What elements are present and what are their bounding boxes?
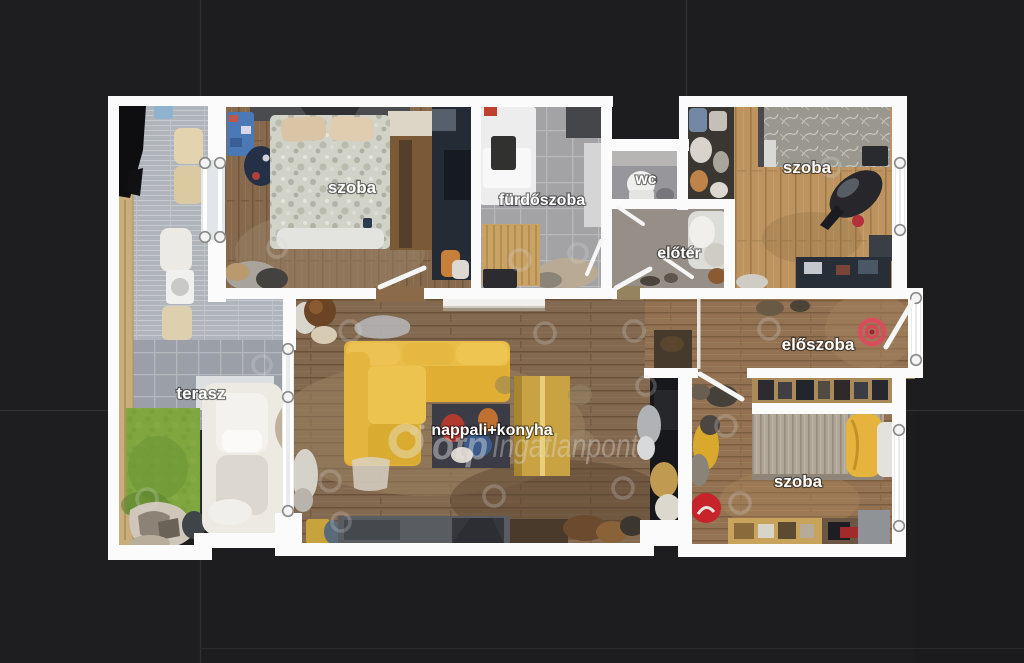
svg-text:terasz: terasz bbox=[176, 384, 225, 403]
svg-text:szoba: szoba bbox=[328, 178, 377, 197]
svg-text:előszoba: előszoba bbox=[782, 335, 855, 354]
svg-text:szoba: szoba bbox=[783, 158, 832, 177]
svg-text:előtér: előtér bbox=[657, 245, 701, 262]
svg-text:wc: wc bbox=[634, 171, 656, 188]
svg-text:szoba: szoba bbox=[774, 472, 823, 491]
svg-text:nappali+konyha: nappali+konyha bbox=[431, 422, 552, 439]
svg-text:fürdőszoba: fürdőszoba bbox=[499, 192, 585, 209]
